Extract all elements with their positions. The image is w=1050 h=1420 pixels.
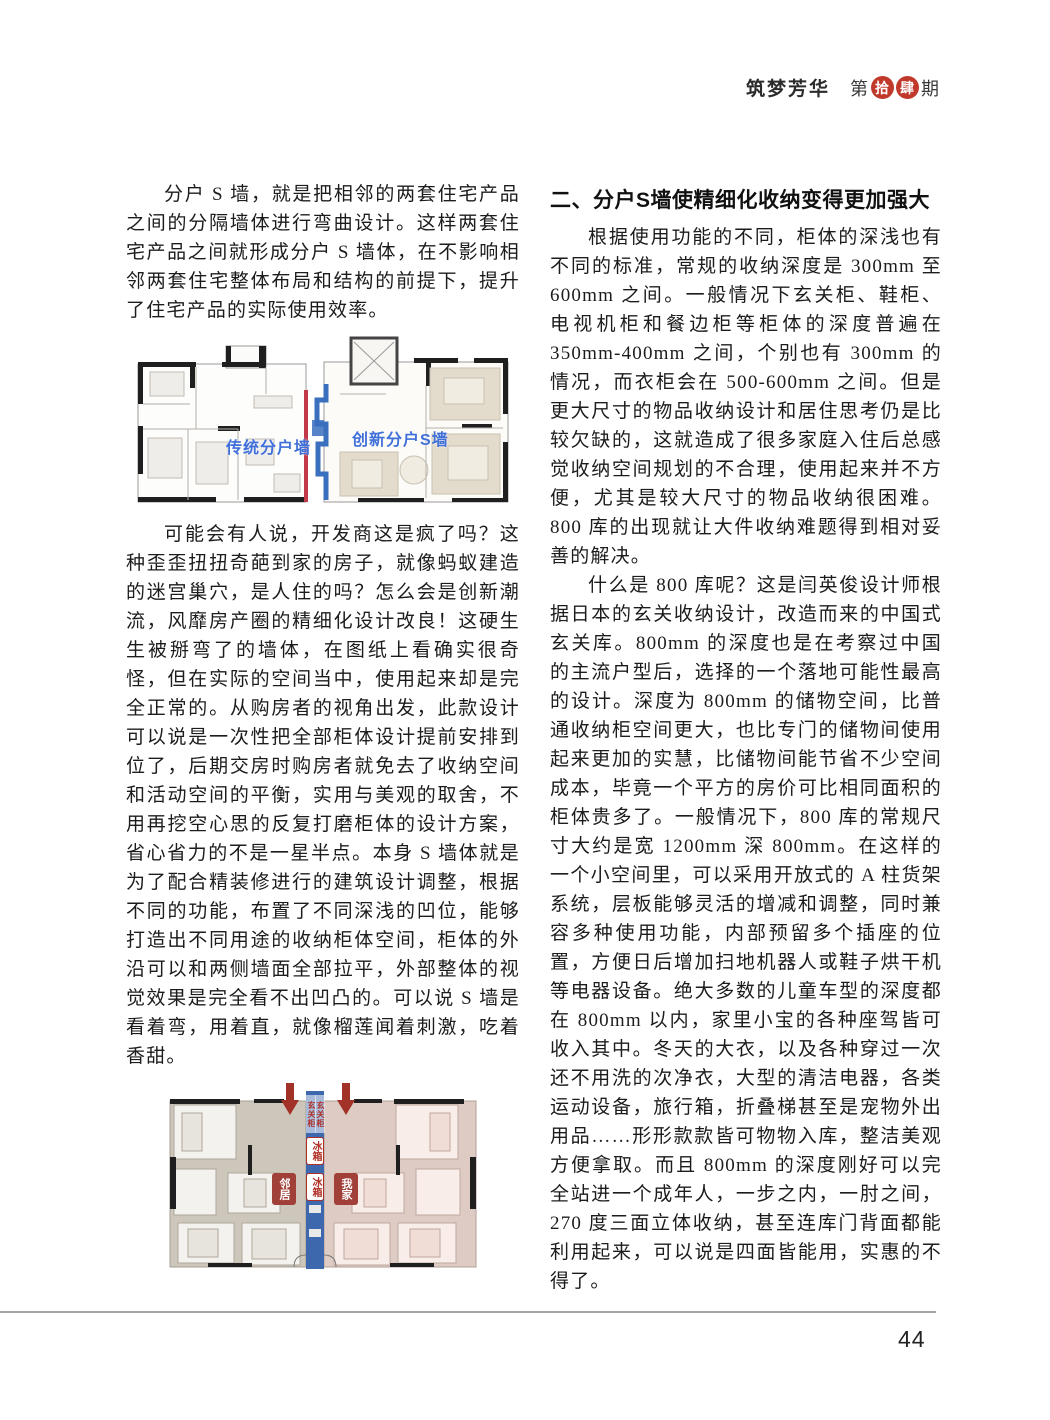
right-column: 二、分户S墙使精细化收纳变得更加强大 根据使用功能的不同，柜体的深浅也有不同的标…	[550, 184, 942, 1296]
fridge-label: 冰箱	[306, 1137, 324, 1165]
issue-seal-icon: 肆	[896, 76, 919, 99]
footer-divider	[0, 1311, 936, 1313]
left-column: 分户 S 墙，就是把相邻的两套住宅产品之间的分隔墙体进行弯曲设计。这样两套住宅产…	[126, 180, 520, 1269]
my-home-badge: 我家	[334, 1173, 358, 1205]
section-heading: 二、分户S墙使精细化收纳变得更加强大	[550, 184, 942, 214]
issue-seal-icon: 拾	[871, 76, 894, 99]
figure-shared-swall-plan: 玄关柜 玄关柜 冰箱 冰箱 邻居 我家	[158, 1079, 488, 1269]
issue-label: 第 拾 肆 期	[850, 75, 940, 101]
issue-suffix: 期	[921, 75, 940, 101]
page-number: 44	[898, 1326, 926, 1353]
innovative-plan-label: 创新分户S墙	[352, 426, 449, 450]
paragraph-800-storage: 什么是 800 库呢？这是闫英俊设计师根据日本的玄关收纳设计，改造而来的中国式玄…	[550, 571, 942, 1296]
entry-cabinet-label: 玄关柜	[315, 1095, 325, 1133]
magazine-page: 筑梦芳华 第 拾 肆 期 分户 S 墙，就是把相邻的两套住宅产品之间的分隔墙体进…	[0, 0, 1050, 1420]
paragraph-discussion: 可能会有人说，开发商这是疯了吗？这种歪歪扭扭奇葩到家的房子，就像蚂蚁建造的迷宫巢…	[126, 520, 520, 1071]
issue-prefix: 第	[850, 75, 869, 101]
paragraph-storage-depth: 根据使用功能的不同，柜体的深浅也有不同的标准，常规的收纳深度是 300mm 至 …	[550, 223, 942, 571]
magazine-title: 筑梦芳华	[746, 74, 830, 101]
figure-floorplan-comparison: 传统分户墙 创新分户S墙	[126, 334, 520, 510]
s-wall-line	[317, 384, 326, 500]
fridge-label: 冰箱	[306, 1173, 324, 1201]
page-header: 筑梦芳华 第 拾 肆 期	[746, 74, 940, 101]
traditional-plan-label: 传统分户墙	[226, 434, 311, 458]
floor-plan-drawing	[126, 334, 520, 510]
paragraph-intro: 分户 S 墙，就是把相邻的两套住宅产品之间的分隔墙体进行弯曲设计。这样两套住宅产…	[126, 180, 520, 325]
neighbor-badge: 邻居	[272, 1173, 296, 1205]
